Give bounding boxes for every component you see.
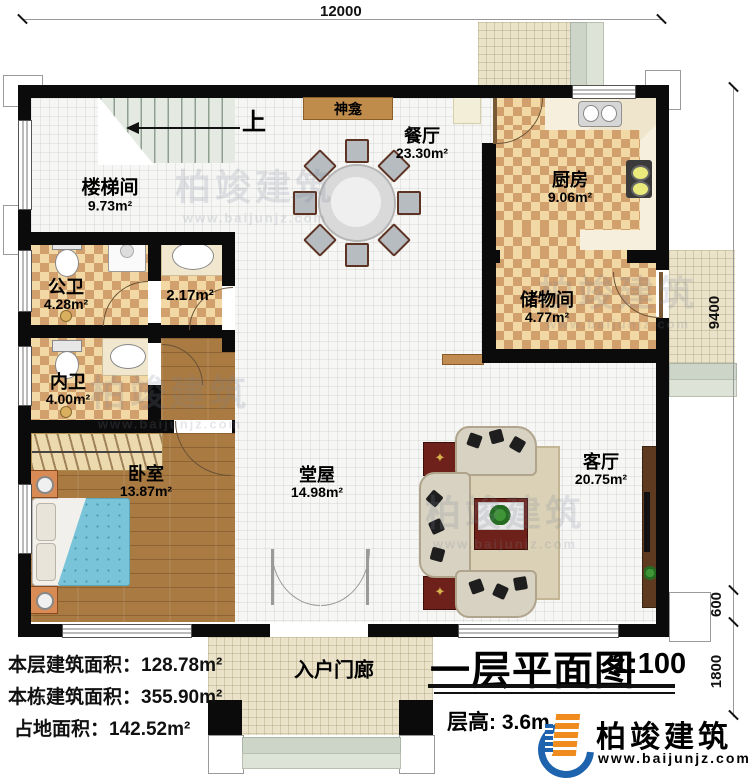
brand-url: www.baijunjz.com	[598, 750, 750, 766]
window	[458, 624, 619, 638]
logo-building-side	[545, 724, 553, 754]
shrine-side-table	[453, 97, 481, 124]
shrine-label: 神龛	[334, 99, 362, 119]
nightstand-lamp	[36, 592, 54, 610]
stairs-direction-line	[138, 127, 240, 129]
door-opening	[148, 281, 161, 323]
room-label-public-bath: 公卫 4.28m²	[44, 278, 88, 312]
wall-vestibule-stub	[222, 338, 235, 352]
dimension-height-porch: 1800	[700, 646, 734, 696]
room-label-porch: 入户门廊	[294, 661, 374, 682]
logo-building	[552, 714, 580, 756]
entrance-opening	[270, 624, 368, 637]
wall-kitchen-left	[482, 143, 496, 349]
washing-machine-drum	[120, 244, 134, 258]
window	[62, 624, 192, 638]
room-label-bedroom: 卧室 13.87m²	[120, 465, 172, 499]
stat-building-area: 本栋建筑面积：355.90m²	[8, 682, 222, 709]
title-underline-thick	[428, 684, 675, 688]
title-underline-thin	[434, 692, 675, 694]
stove-burner	[631, 181, 650, 197]
half-wall	[442, 354, 484, 365]
end-table	[423, 442, 457, 476]
porch-step	[242, 753, 401, 769]
watermark: 柏竣建筑 www.baijunjz.com	[175, 159, 335, 226]
window	[18, 250, 32, 312]
toilet	[55, 249, 79, 277]
dimension-height-main: 9400	[698, 280, 732, 344]
bed-pillow	[36, 543, 56, 581]
window	[18, 484, 32, 554]
dining-chair	[345, 139, 369, 163]
floor-plan: 上 神龛	[0, 0, 750, 780]
stat-land-area: 占地面积：142.52m²	[14, 714, 190, 741]
plan-scale: 1:100	[612, 648, 686, 681]
side-landing-step	[669, 379, 737, 397]
floor-height-label: 层高: 3.6m	[447, 706, 550, 736]
sofa-pillow	[513, 576, 528, 591]
stove-burner	[631, 165, 650, 181]
rear-patio-step	[586, 22, 604, 87]
stairs-arrow-icon	[126, 122, 139, 134]
dimension-height-step: 600	[702, 586, 732, 622]
stairs-up-label: 上	[242, 102, 266, 137]
room-label-stairwell: 楼梯间 9.73m²	[81, 179, 138, 214]
room-label-private-bath: 内卫 4.00m²	[46, 373, 90, 407]
dining-chair	[397, 191, 421, 215]
rear-patio	[478, 22, 570, 85]
wall-kitchen-storage-stub	[482, 250, 500, 263]
kitchen-sink-bowl	[601, 105, 617, 122]
porch-column	[399, 700, 433, 735]
tv	[644, 492, 650, 552]
room-label-kitchen: 厨房 9.06m²	[548, 171, 592, 205]
plant	[644, 566, 656, 580]
window	[18, 346, 32, 406]
shrine-cabinet: 神龛	[303, 97, 393, 120]
nightstand-lamp	[36, 476, 54, 494]
window	[572, 85, 636, 99]
wall-niche	[3, 205, 19, 255]
porch-column-base	[208, 735, 244, 774]
dining-chair	[345, 243, 369, 267]
room-label-washroom: 2.17m²	[166, 288, 214, 304]
room-label-dining: 餐厅 23.30m²	[396, 127, 448, 161]
watermark: 柏竣建筑 www.baijunjz.com	[425, 485, 585, 552]
wall-stair-south	[18, 232, 230, 245]
watermark: 柏竣建筑 www.baijunjz.com	[90, 365, 250, 432]
room-label-living: 客厅 20.75m²	[575, 453, 627, 487]
wall-storage-south	[482, 349, 669, 363]
wall-kitchen-storage-stub	[627, 250, 656, 263]
washroom-sink	[172, 242, 214, 270]
room-label-storage: 储物间 4.77m²	[520, 291, 574, 325]
stat-floor-area: 本层建筑面积：128.78m²	[8, 650, 222, 677]
brand-logo-icon	[536, 710, 592, 772]
dining-table-top	[331, 177, 381, 227]
end-table	[423, 576, 457, 610]
floor-drain	[60, 406, 72, 418]
dimension-width: 12000	[320, 3, 362, 20]
window	[18, 120, 32, 210]
room-label-main-hall: 堂屋 14.98m²	[291, 466, 343, 500]
wall-kitchen-left-stub	[482, 85, 496, 98]
porch-column-base	[399, 735, 435, 774]
kitchen-floor-tiles	[495, 228, 580, 250]
bed-pillow	[36, 503, 56, 541]
kitchen-sink-bowl	[583, 105, 599, 122]
